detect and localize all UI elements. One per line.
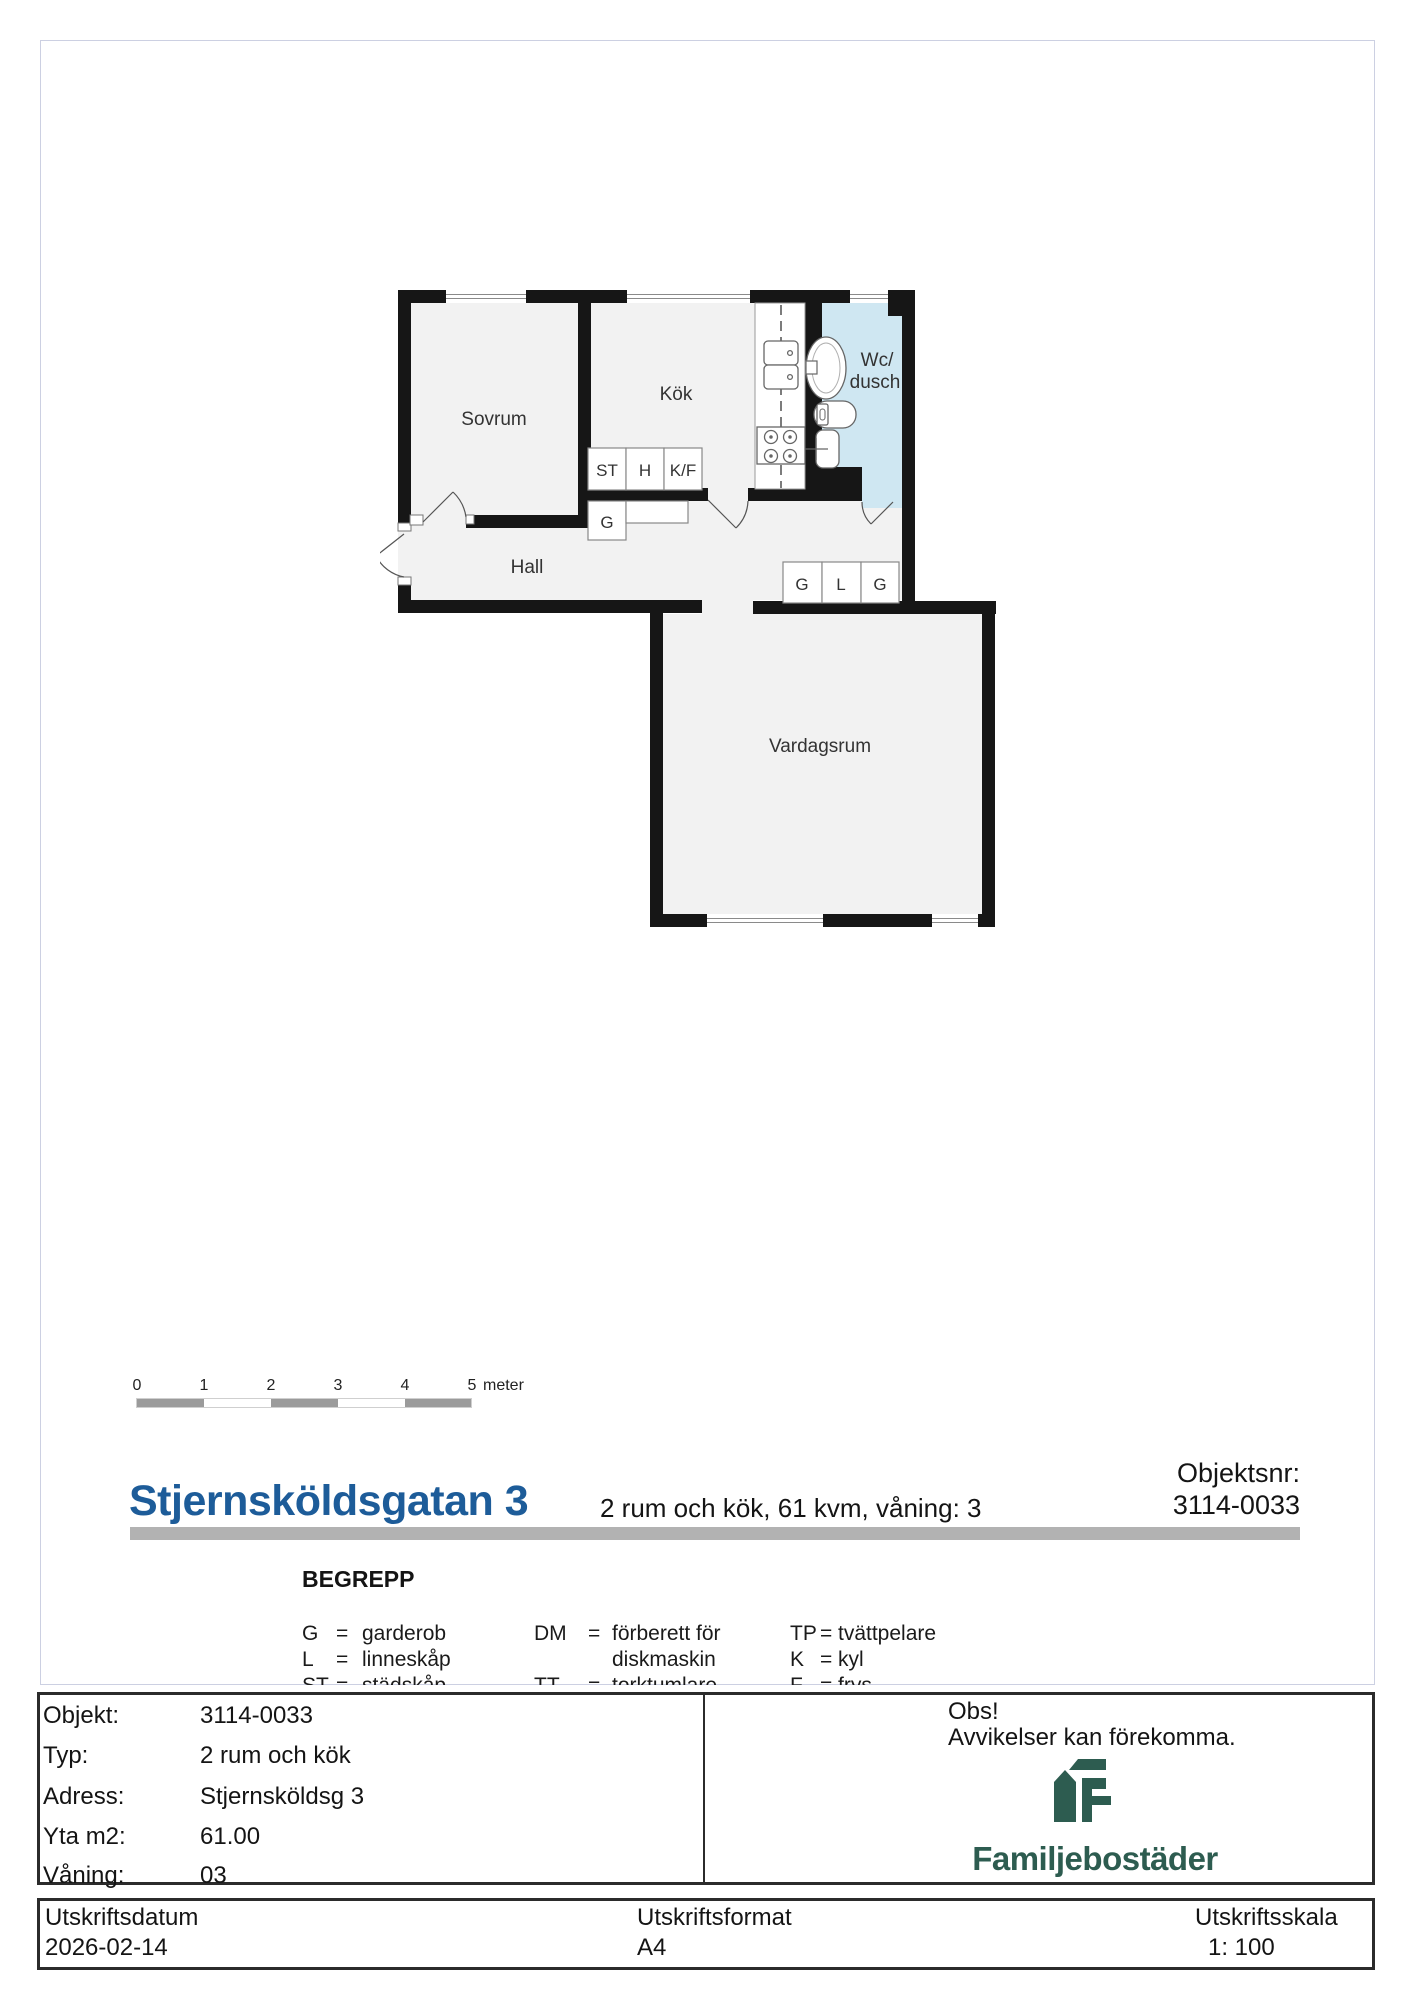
legend-abbr: L xyxy=(302,1648,314,1672)
closet-label-g-hall: G xyxy=(600,513,613,532)
info-row-label: Yta m2: xyxy=(43,1823,126,1851)
scale-track xyxy=(136,1398,472,1408)
legend-abbr: TT xyxy=(534,1674,560,1685)
legend-abbr: K xyxy=(790,1648,804,1672)
legend-eq: = xyxy=(336,1622,348,1646)
room-label-kok: Kök xyxy=(660,384,693,405)
closet-label-st: ST xyxy=(596,461,618,480)
closet-label-l: L xyxy=(836,575,845,594)
info-row-value: 03 xyxy=(200,1862,227,1890)
legend-abbr: TP xyxy=(790,1622,817,1646)
washbasin-icon xyxy=(806,337,846,399)
page-subtitle: 2 rum och kök, 61 kvm, våning: 3 xyxy=(600,1493,982,1524)
logo-roof xyxy=(1069,1759,1106,1770)
legend-abbr: G xyxy=(302,1622,318,1646)
legend-term: diskmaskin xyxy=(612,1648,716,1672)
legend-eq: = xyxy=(588,1622,600,1646)
stove-icon xyxy=(757,427,805,464)
legend-term: förberett för xyxy=(612,1622,721,1646)
hall-shelf xyxy=(626,501,688,523)
legend-list: G = garderob L = linneskåp ST = städskåp… xyxy=(290,1610,1010,1685)
legend-term: frys xyxy=(838,1674,872,1685)
footer-col-label: Utskriftsformat xyxy=(637,1904,792,1932)
legend-term: linneskåp xyxy=(362,1648,451,1672)
closet-label-g2: G xyxy=(873,575,886,594)
room-label-hall: Hall xyxy=(511,557,544,578)
scale-tick-1: 1 xyxy=(184,1377,224,1395)
legend-eq: = xyxy=(820,1674,832,1685)
info-row-label: Våning: xyxy=(43,1862,124,1890)
toilet-icon xyxy=(814,401,856,428)
floorplan-document: { "floor_plan": { "labels": { "sovrum": … xyxy=(0,0,1413,2000)
floor-plan: Sovrum Kök Wc/ dusch Hall Vardagsrum ST … xyxy=(380,280,1020,950)
legend-term: kyl xyxy=(838,1648,864,1672)
legend-term: städskåp xyxy=(362,1674,446,1685)
scale-tick-4: 4 xyxy=(385,1377,425,1395)
info-row-value: Stjernsköldsg 3 xyxy=(200,1783,364,1811)
legend-abbr: F xyxy=(790,1674,803,1685)
info-row-label: Adress: xyxy=(43,1783,124,1811)
notice-text: Avvikelser kan förekomma. xyxy=(948,1724,1236,1752)
info-row-value: 2 rum och kök xyxy=(200,1742,351,1770)
legend-eq: = xyxy=(820,1648,832,1672)
closet-label-kf: K/F xyxy=(670,461,696,480)
footer-col-value: 1: 100 xyxy=(1208,1934,1275,1962)
closet-label-g1: G xyxy=(795,575,808,594)
title-divider-bar xyxy=(130,1527,1300,1540)
info-row-value: 3114-0033 xyxy=(200,1702,313,1730)
notice-obs: Obs! xyxy=(948,1698,999,1726)
room-label-wc-2: dusch xyxy=(850,372,901,393)
legend-term: torktumlare xyxy=(612,1674,717,1685)
room-label-sovrum: Sovrum xyxy=(461,409,526,430)
logo-f xyxy=(1082,1778,1111,1822)
scale-tick-3: 3 xyxy=(318,1377,358,1395)
legend-eq: = xyxy=(336,1674,348,1685)
scale-unit-label: meter xyxy=(483,1377,524,1395)
info-row-label: Objekt: xyxy=(43,1702,119,1730)
closet-label-h: H xyxy=(639,461,651,480)
footer-col-label: Utskriftsdatum xyxy=(45,1904,198,1932)
info-table-divider xyxy=(703,1695,705,1882)
footer-col-value: 2026-02-14 xyxy=(45,1934,168,1962)
info-row-value: 61.00 xyxy=(200,1823,260,1851)
legend-abbr: DM xyxy=(534,1622,567,1646)
object-number-label: Objektsnr: xyxy=(1000,1458,1300,1490)
logo-house xyxy=(1054,1770,1076,1822)
footer-col-value: A4 xyxy=(637,1934,666,1962)
room-label-vardagsrum: Vardagsrum xyxy=(769,736,871,757)
kitchen-counter xyxy=(755,303,805,489)
footer-col-label: Utskriftsskala xyxy=(1195,1904,1338,1932)
brand-name: Familjebostäder xyxy=(945,1840,1245,1878)
legend-eq: = xyxy=(336,1648,348,1672)
legend-term: tvättpelare xyxy=(838,1622,936,1646)
scale-tick-2: 2 xyxy=(251,1377,291,1395)
object-number-value: 3114-0033 xyxy=(1000,1490,1300,1522)
familjebostader-logo-icon xyxy=(1048,1756,1124,1826)
legend-abbr: ST xyxy=(302,1674,329,1685)
info-row-label: Typ: xyxy=(43,1742,88,1770)
room-label-wc-1: Wc/ xyxy=(861,350,894,371)
legend-eq: = xyxy=(820,1622,832,1646)
scale-tick-0: 0 xyxy=(117,1377,157,1395)
legend-term: garderob xyxy=(362,1622,446,1646)
kitchen-sink-icon xyxy=(764,341,798,389)
legend-eq: = xyxy=(588,1674,600,1685)
page-title: Stjernsköldsgatan 3 xyxy=(129,1477,528,1526)
legend-heading: BEGREPP xyxy=(302,1566,414,1593)
object-number-block: Objektsnr: 3114-0033 xyxy=(1000,1458,1300,1522)
